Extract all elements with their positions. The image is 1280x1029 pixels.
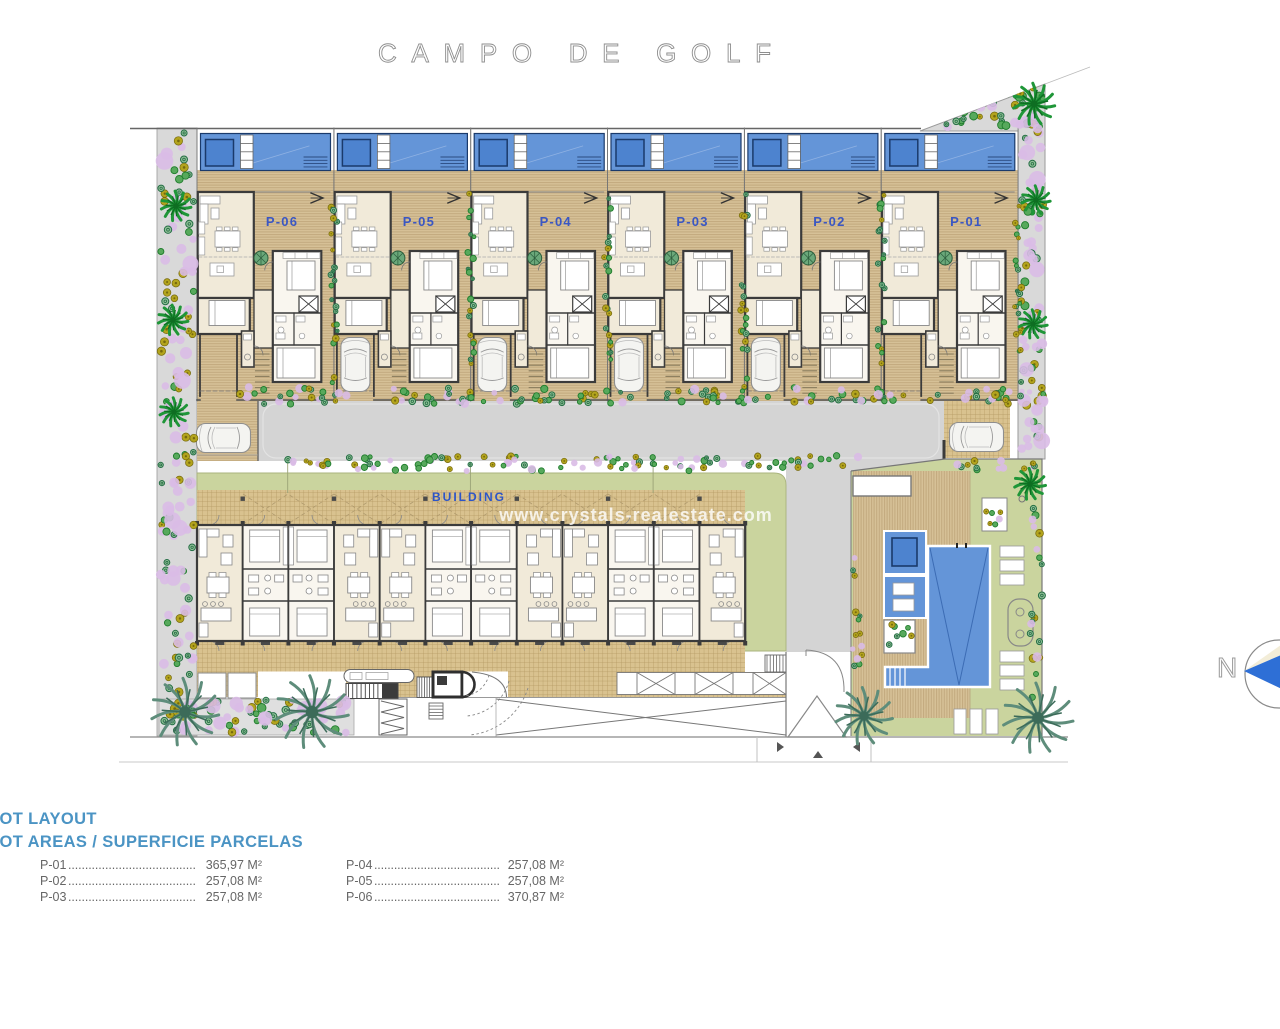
svg-text:P-03: P-03: [40, 890, 66, 904]
svg-text:..............................: ......................................: [374, 890, 500, 904]
svg-text:P-05: P-05: [403, 214, 435, 229]
svg-text:P-03: P-03: [676, 214, 708, 229]
svg-text:P-05: P-05: [346, 874, 372, 888]
svg-text:P-01: P-01: [40, 858, 66, 872]
svg-text:..............................: ......................................: [374, 874, 500, 888]
svg-text:P-04: P-04: [346, 858, 372, 872]
svg-text:P-06: P-06: [346, 890, 372, 904]
svg-text:257,08 M²: 257,08 M²: [206, 874, 262, 888]
svg-text:257,08 M²: 257,08 M²: [508, 874, 564, 888]
svg-text:LOT LAYOUT: LOT LAYOUT: [0, 810, 97, 828]
svg-text:N: N: [1217, 652, 1237, 683]
svg-text:P-01: P-01: [950, 214, 982, 229]
svg-text:BUILDING: BUILDING: [432, 490, 506, 504]
svg-text:P-02: P-02: [813, 214, 845, 229]
svg-text:..............................: ......................................: [68, 890, 196, 904]
svg-text:..............................: ......................................: [68, 874, 196, 888]
svg-text:CAMPO DE GOLF: CAMPO DE GOLF: [378, 38, 788, 68]
svg-text:257,08 M²: 257,08 M²: [206, 890, 262, 904]
svg-text:P-04: P-04: [540, 214, 572, 229]
svg-text:..............................: ......................................: [68, 858, 196, 872]
svg-text:LOT AREAS / SUPERFICIE PARCELA: LOT AREAS / SUPERFICIE PARCELAS: [0, 833, 303, 851]
svg-text:www.crystals-realestate.com: www.crystals-realestate.com: [498, 505, 772, 525]
svg-text:..............................: ......................................: [374, 858, 500, 872]
svg-text:365,97 M²: 365,97 M²: [206, 858, 262, 872]
svg-text:P-06: P-06: [266, 214, 298, 229]
svg-text:257,08 M²: 257,08 M²: [508, 858, 564, 872]
svg-text:P-02: P-02: [40, 874, 66, 888]
svg-text:370,87 M²: 370,87 M²: [508, 890, 564, 904]
